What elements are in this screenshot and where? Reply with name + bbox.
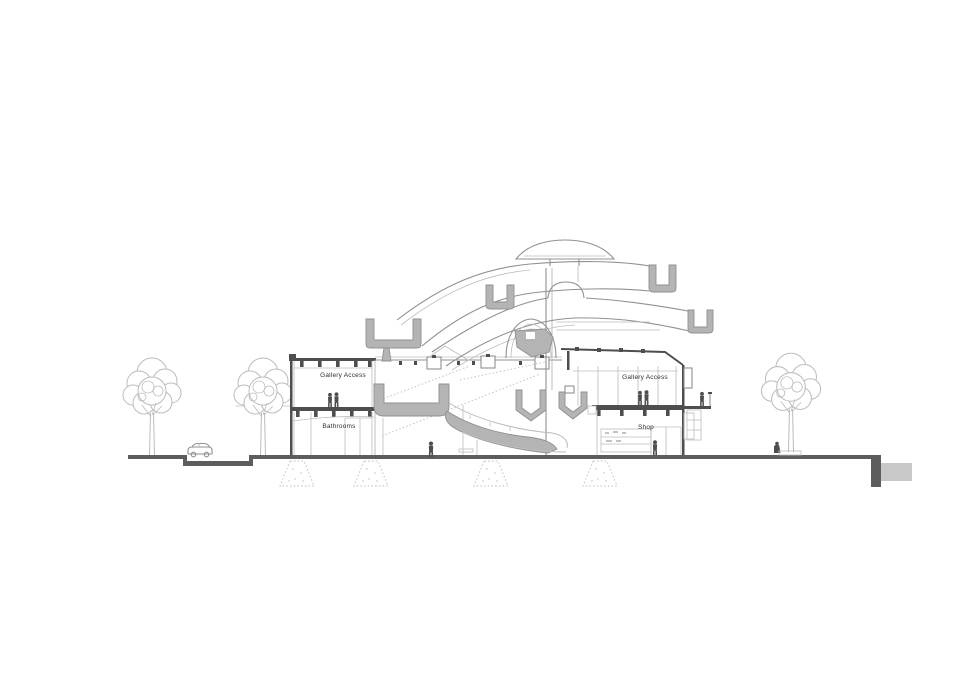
ground-step-edge — [871, 455, 881, 487]
room-label-gallery-access-right: Gallery Access — [622, 374, 668, 381]
tree — [234, 358, 292, 455]
room-label-gallery-access-left: Gallery Access — [320, 372, 366, 379]
person-figure — [638, 391, 642, 405]
right-floor-slab — [592, 405, 683, 410]
tube-section-cut — [374, 384, 449, 416]
tube-section-cut — [486, 285, 514, 309]
person-figure — [700, 392, 704, 406]
building-section-drawing: Gallery Access Bathrooms Gallery Access … — [0, 0, 960, 679]
foundation-footing — [280, 461, 314, 486]
foundation-footings — [280, 461, 617, 486]
balcony-slab — [683, 406, 711, 409]
skylight-box — [427, 357, 441, 369]
room-label-shop: Shop — [638, 424, 654, 431]
facade-panel — [684, 368, 692, 388]
left-floor-slab — [290, 407, 376, 411]
tube-support-stem — [382, 348, 391, 361]
person-figure — [653, 440, 657, 455]
foundation-footing — [474, 461, 508, 486]
tube-structures — [366, 240, 713, 370]
skylight-box — [481, 356, 495, 368]
seated-person-figure — [774, 442, 801, 455]
tree — [123, 358, 181, 455]
mid-level-tubes — [374, 384, 596, 453]
left-wing: Gallery Access Bathrooms — [289, 354, 376, 455]
trees — [123, 353, 821, 455]
tube-section-cut — [516, 390, 546, 421]
left-exterior-wall — [290, 358, 293, 455]
room-label-bathrooms: Bathrooms — [322, 423, 356, 430]
bench — [779, 451, 801, 455]
car-icon — [188, 444, 212, 457]
tube-section-cut — [688, 310, 713, 333]
ground-edge-block — [881, 463, 912, 481]
tube-section-cut — [559, 392, 587, 419]
person-figure — [334, 392, 338, 407]
tube-section-cut — [366, 319, 421, 348]
person-figure — [429, 441, 433, 457]
person-figure — [644, 390, 648, 405]
spiral-ramp — [445, 403, 567, 453]
left-roof-slab — [290, 358, 376, 361]
foundation-footing — [354, 461, 388, 486]
section-drawing-page: Gallery Access Bathrooms Gallery Access … — [0, 0, 960, 679]
skylight-box — [535, 357, 549, 369]
person-figure — [328, 393, 332, 407]
tube-section-cut — [649, 265, 676, 292]
foundation-footing — [583, 461, 617, 486]
tree — [761, 353, 820, 452]
